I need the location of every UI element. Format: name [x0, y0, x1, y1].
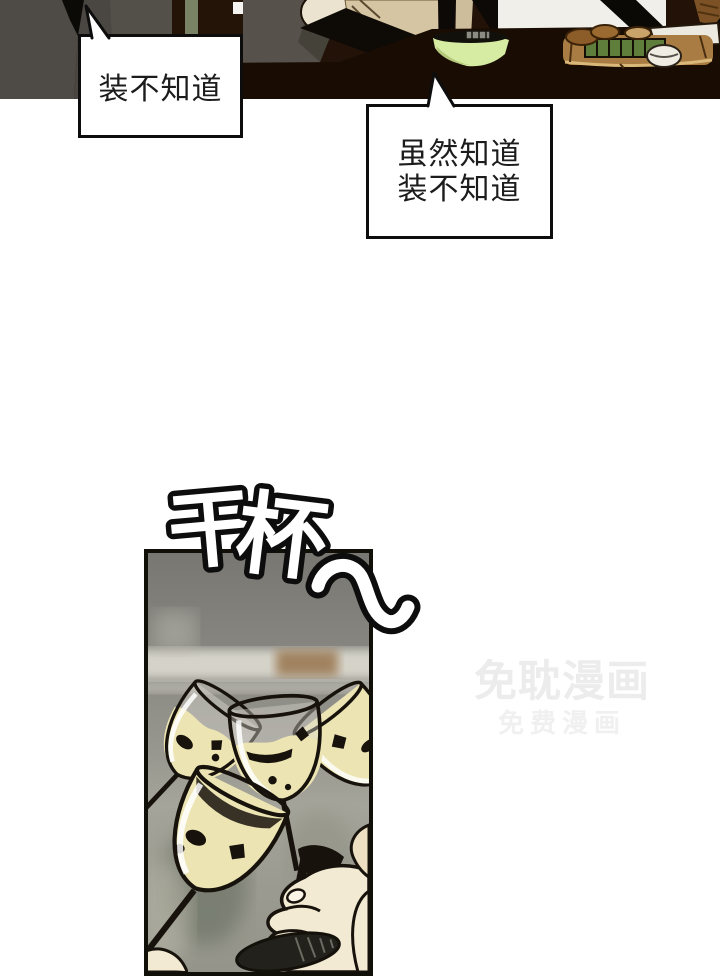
watermark-line2: 免费漫画 — [462, 708, 662, 738]
squiggle-stroke — [318, 565, 408, 621]
speech-bubble-2-line2: 装不知道 — [398, 172, 522, 207]
speech-bubble-2-tail — [420, 70, 466, 112]
speech-bubble-1-text: 装不知道 — [99, 64, 223, 108]
speech-bubble-1: 装不知道 — [78, 34, 243, 138]
watermark-line1: 免耽漫画 — [462, 659, 662, 705]
sfx-cheers: 干 杯 — [140, 456, 425, 651]
watermark: 免耽漫画 免费漫画 — [462, 659, 662, 738]
comic-page: { "page": { "background": "#ffffff" }, "… — [0, 0, 720, 976]
speech-bubble-2: 虽然知道 装不知道 — [366, 104, 553, 239]
speech-bubble-1-tail — [76, 4, 120, 44]
speech-bubble-2-line1: 虽然知道 — [398, 137, 522, 172]
